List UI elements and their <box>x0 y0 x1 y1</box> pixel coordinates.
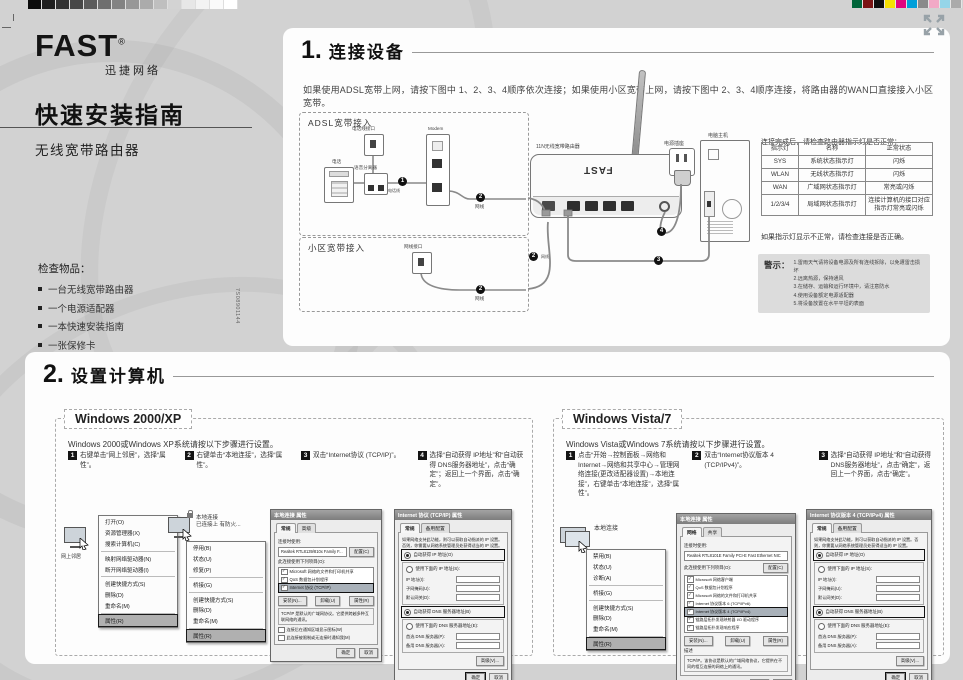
adsl-connection-diagram: ADSL宽带接入 电话线接口 Modem 电话 语音分离器 1 电话线 2 网线 <box>299 112 529 236</box>
calibration-cell <box>885 0 896 8</box>
splitter-label: 语音分离器 <box>354 165 377 171</box>
warning-label: 警示： <box>764 259 790 308</box>
router-label: 11N无线宽带路由器 <box>536 143 580 150</box>
menu-item: 修复(P) <box>187 565 265 576</box>
mask-field-row: 子网掩码(U): <box>406 585 500 592</box>
protocol-list-item: 链路层拓扑发现响应程序 <box>685 624 787 632</box>
warning-item: 4.使用设备额定电源适配器 <box>794 292 924 300</box>
step-number: 3 <box>301 451 310 460</box>
ethernet-port-icon <box>603 201 616 211</box>
calibration-cell <box>224 0 238 9</box>
radio-manual-dns: 使用下面的 DNS 服务器地址(E): <box>406 621 500 631</box>
step-text: 右键单击“网上邻居”，选择“属性”。 <box>80 451 175 489</box>
protocol-list-item: 链路层拓扑发现映射器 I/O 驱动程序 <box>685 616 787 624</box>
radio-icon <box>818 566 825 573</box>
xp-intro: Windows 2000或Windows XP系统请按以下步骤进行设置。 <box>68 439 278 450</box>
properties-button: 属性(R) <box>763 636 788 646</box>
install-button: 安装(N)... <box>684 636 713 646</box>
menu-item: 资源管理器(X) <box>99 528 177 539</box>
power-jack-icon <box>659 201 670 212</box>
calibration-cell <box>84 0 98 9</box>
windows-vista-7-instructions: Windows Vista/7 Windows Vista或Windows 7系… <box>553 418 944 656</box>
ip-input <box>876 576 920 583</box>
vista-intro: Windows Vista或Windows 7系统请按以下步骤进行设置。 <box>566 439 769 450</box>
instruction-step: 2 双击“Internet协议版本 4 (TCP/IPv4)”。 <box>692 451 808 499</box>
instruction-step: 2 右键单击“本地连接”，选择“属性”。 <box>185 451 292 489</box>
dialog-title-bar: Internet 协议 (TCP/IP) 属性 <box>395 510 511 520</box>
cable-label: 网线 <box>541 254 549 260</box>
warning-item: 1.雷雨天气请将设备电源及所有连线拆除，以免遭雷击损坏 <box>794 259 924 275</box>
step-1-ball: 1 <box>398 177 407 186</box>
step-3-ball: 3 <box>654 256 663 265</box>
description-box: TCP/IP 是默认的广域网协议。它提供跨越多种互联网络的通讯。 <box>278 608 374 625</box>
checkbox-icon <box>281 569 288 576</box>
tab-sharing: 共享 <box>703 527 723 537</box>
checklist-item: 一本快速安装指南 <box>38 319 134 333</box>
menu-item: 桥接(G) <box>187 579 265 590</box>
section-connect-devices: 1. 连接设备 如果使用ADSL宽带上网，请按下图中 1、2、3、4顺序依次连接… <box>283 28 950 346</box>
checkbox-icon <box>687 584 694 591</box>
section-title: 设置计算机 <box>71 362 166 387</box>
manual-ip-group: 使用下面的 IP 地址(S): IP 地址(I): 子网掩码(U): 默认网关(… <box>814 562 924 605</box>
modem-label: Modem <box>428 126 443 131</box>
dns1-input <box>456 633 500 640</box>
header-rule <box>412 52 934 53</box>
radio-icon <box>404 609 411 616</box>
dialog-intro-text: 如果网络支持此功能，则可以获取自动指派的 IP 设置。否则，你需要从网络系统管理… <box>814 537 924 548</box>
dialog-title-bar: Internet 协议版本 4 (TCP/IPv4) 属性 <box>807 510 931 520</box>
menu-item: 禁用(B) <box>587 551 665 562</box>
calibration-cell <box>863 0 874 8</box>
menu-item <box>589 636 663 637</box>
ethernet-port-icon <box>585 201 598 211</box>
tower-vent-circle <box>722 199 742 219</box>
status-cell: 闪烁 <box>866 169 933 182</box>
menu-item: 属性(R) <box>99 615 177 626</box>
led-cell: 1/2/3/4 <box>762 195 799 216</box>
section-number: 1. <box>301 36 322 65</box>
status-cell: 闪烁 <box>866 156 933 169</box>
outlet-label: 电源插座 <box>664 140 684 147</box>
step-text: 双击“Internet协议版本 4 (TCP/IPv4)”。 <box>704 451 808 499</box>
advanced-button: 高级(V)... <box>896 656 924 666</box>
icon-caption: 本地连接 <box>594 523 618 532</box>
menu-item: 状态(U) <box>587 562 665 573</box>
calibration-cell <box>56 0 70 9</box>
menu-item: 重命名(M) <box>99 600 177 611</box>
scanned-guide-page: FAST® 迅捷网络 快速安装指南 无线宽带路由器 检查物品： 一台无线宽带路由… <box>0 0 963 680</box>
warning-item: 3.在储存、运输和运行环境中，请注意防水 <box>794 283 924 291</box>
radio-auto-dns: 自动获得 DNS 服务器地址(B) <box>402 607 504 617</box>
ok-button: 确定 <box>466 673 485 680</box>
cursor-icon <box>182 529 192 541</box>
description-box: TCP/IP。该协议是默认的广域网络协议，它提供在不同的相互连接的网络上的通讯。 <box>684 655 788 672</box>
step-text: 右键单击“本地连接”，选择“属性”。 <box>197 451 292 489</box>
dns2-field-row: 备用 DNS 服务器(A): <box>406 642 500 649</box>
tab-networking: 网络 <box>682 527 702 537</box>
install-button: 安装(N)... <box>278 596 307 606</box>
dns1-field-row: 首选 DNS 服务器(P): <box>406 633 500 640</box>
ip-input <box>456 576 500 583</box>
square-bullet-icon <box>38 343 42 347</box>
icon-caption: 本地连接 已连接上 有防火... <box>196 515 250 530</box>
router-brand-text: FAST <box>583 164 613 175</box>
ip-field-row: IP 地址(I): <box>818 576 920 583</box>
checkbox-icon <box>278 627 285 634</box>
calibration-cell <box>951 0 962 8</box>
protocol-list-item: Internet 协议版本 4 (TCP/IPv4) <box>685 608 787 616</box>
radio-icon <box>406 623 413 630</box>
description-label: 描述 <box>684 648 788 654</box>
calibration-cell <box>70 0 84 9</box>
menu-item: 断开网络驱动器(I) <box>99 564 177 575</box>
notify-checkbox-row: 连接后在通知区域显示图标(W) <box>278 627 374 634</box>
phone-line-label: 电话线 <box>388 188 400 194</box>
menu-item: 重命名(M) <box>187 616 265 627</box>
manual-ip-group: 使用下面的 IP 地址(S): IP 地址(I): 子网掩码(U): 默认网关(… <box>402 562 504 605</box>
ip-field-row: IP 地址(I): <box>406 576 500 583</box>
menu-item <box>189 577 263 578</box>
dialog-local-connection-properties-xp: 本地连接 属性 常规 高级 连接时使用: Realtek RTL8139/810… <box>270 509 382 662</box>
context-menu-local-connection: 禁用(B)状态(U)诊断(A)桥接(G)创建快捷方式(S)删除(D)重命名(M)… <box>586 549 666 651</box>
calibration-cell <box>98 0 112 9</box>
calibration-cell <box>112 0 126 9</box>
dns2-field-row: 备用 DNS 服务器(A): <box>818 642 920 649</box>
dialog-title-bar: 本地连接 属性 <box>271 510 381 520</box>
manual-dns-group: 使用下面的 DNS 服务器地址(E): 首选 DNS 服务器(P): 备用 DN… <box>814 619 924 653</box>
protocol-list: Microsoft 网络客户端QoS 数据包计划程序Microsoft 网络的文… <box>684 575 788 634</box>
uninstall-button: 卸载(U) <box>725 636 750 646</box>
mask-input <box>456 585 500 592</box>
radio-icon <box>816 609 823 616</box>
calibration-cell <box>28 0 42 9</box>
cursor-icon <box>578 541 588 553</box>
calibration-cell <box>940 0 951 8</box>
step-text: 点击“开始→控制面板→网络和 Internet→网络和共享中心→管理网络连接(更… <box>578 451 682 499</box>
checkbox-icon <box>687 609 694 616</box>
mask-input <box>876 585 920 592</box>
instruction-step: 3 选择“自动获得 IP地址”和“自动获得 DNS服务器地址”，点击“确定”，返… <box>819 451 935 499</box>
menu-item: 创建快捷方式(S) <box>587 602 665 613</box>
gateway-input <box>456 594 500 601</box>
step-text: 选择“自动获得 IP地址”和“自动获得 DNS服务器地址”，点击“确定”；返回上… <box>430 451 525 489</box>
guide-title: 快速安装指南 <box>35 96 255 130</box>
title-block: 快速安装指南 无线宽带路由器 <box>35 96 255 159</box>
step-number: 3 <box>819 451 828 460</box>
phone-wall-jack-illustration <box>364 134 384 156</box>
radio-manual-dns: 使用下面的 DNS 服务器地址(E): <box>818 621 920 631</box>
step-4-ball: 4 <box>657 227 666 236</box>
community-broadband-diagram: 小区宽带接入 网线接口 2 网线 <box>299 237 529 312</box>
instruction-step: 4 选择“自动获得 IP地址”和“自动获得 DNS服务器地址”，点击“确定”；返… <box>418 451 525 489</box>
radio-icon <box>406 566 413 573</box>
tab-general: 常规 <box>276 523 296 533</box>
title-divider <box>0 127 252 128</box>
checkbox-icon <box>278 635 285 642</box>
calibration-cell <box>852 0 863 8</box>
menu-item <box>101 613 175 614</box>
adapter-name: Realtek RTL8139/810x Family F... <box>278 547 347 557</box>
radio-auto-dns: 自动获得 DNS 服务器地址(B) <box>814 607 924 617</box>
menu-item: 属性(R) <box>187 630 265 641</box>
square-bullet-icon <box>38 306 42 310</box>
router-ports <box>533 196 679 215</box>
section-title: 连接设备 <box>329 38 405 63</box>
grayscale-calibration-strip <box>28 0 238 9</box>
checklist-item: 一个电源适配器 <box>38 301 134 315</box>
header-rule <box>173 376 934 377</box>
name-cell: 系统状态指示灯 <box>799 156 866 169</box>
menu-item: 创建快捷方式(S) <box>187 594 265 605</box>
guide-subtitle: 无线宽带路由器 <box>35 139 255 159</box>
router-illustration: FAST <box>530 154 682 218</box>
radio-auto-ip: 自动获得 IP 地址(O) <box>814 550 924 560</box>
wall-jack-label: 网线接口 <box>404 244 422 250</box>
ok-button: 确定 <box>336 648 355 658</box>
modem-port-icon <box>432 183 442 192</box>
step-2-ball: 2 <box>476 193 485 202</box>
connect-using-label: 连接时使用: <box>278 539 374 545</box>
name-col-header: 名称 <box>799 143 866 156</box>
advanced-button: 高级(V)... <box>476 656 504 666</box>
led-note: 如果指示灯显示不正常，请检查连接是否正确。 <box>761 232 908 242</box>
tab-windows-vista-7: Windows Vista/7 <box>562 409 682 429</box>
step-number: 1 <box>566 451 575 460</box>
brand-tagline: 迅捷网络 <box>35 62 163 78</box>
protocol-list-item: QoS 数据包计划程序 <box>685 584 787 592</box>
menu-item <box>589 600 663 601</box>
icon-caption: 网上邻居 <box>61 553 81 560</box>
instruction-step: 3 双击“Internet协议 (TCP/IP)”。 <box>301 451 408 489</box>
checkbox-icon <box>281 577 288 584</box>
led-table-header-row: 指示灯 名称 正常状态 <box>762 143 933 156</box>
led-cell: WLAN <box>762 169 799 182</box>
square-bullet-icon <box>38 287 42 291</box>
section2-header: 2. 设置计算机 <box>43 360 934 389</box>
protocol-list-item: QoS 数据包计划程序 <box>279 576 373 584</box>
led-table-row: WAN 广域网状态指示灯 常亮或闪烁 <box>762 182 933 195</box>
menu-item: 创建快捷方式(S) <box>99 579 177 590</box>
calibration-cell <box>126 0 140 9</box>
menu-item <box>101 551 175 552</box>
section-number: 2. <box>43 360 64 389</box>
gateway-input <box>876 594 920 601</box>
checklist-item: 一张保修卡 <box>38 338 134 352</box>
menu-item: 属性(R) <box>587 638 665 649</box>
step-text: 双击“Internet协议 (TCP/IP)”。 <box>313 451 400 489</box>
led-table-row: WLAN 无线状态指示灯 闪烁 <box>762 169 933 182</box>
windows-2000-xp-instructions: Windows 2000/XP Windows 2000或Windows XP系… <box>55 418 533 656</box>
step-number: 1 <box>68 451 77 460</box>
status-col-header: 正常状态 <box>866 143 933 156</box>
protocol-list-item: Microsoft 网络的文件和打印机共享 <box>279 568 373 576</box>
tower-grill <box>707 221 733 234</box>
status-cell: 常亮或闪烁 <box>866 182 933 195</box>
calibration-cell <box>918 0 929 8</box>
menu-item: 打开(O) <box>99 517 177 528</box>
lan-box-label: 小区宽带接入 <box>308 242 365 254</box>
radio-auto-ip: 自动获得 IP 地址(O) <box>402 550 504 560</box>
checkbox-icon <box>687 592 694 599</box>
manual-dns-group: 使用下面的 DNS 服务器地址(E): 首选 DNS 服务器(P): 备用 DN… <box>402 619 504 653</box>
protocol-list-item: Internet 协议 (TCP/IP) <box>279 584 373 592</box>
checklist-items: 一台无线宽带路由器一个电源适配器一本快速安装指南一张保修卡 <box>38 282 134 352</box>
dns2-input <box>456 642 500 649</box>
dns2-input <box>876 642 920 649</box>
firewall-lock-icon <box>187 513 193 518</box>
tab-general: 常规 <box>400 523 420 533</box>
instruction-step: 1 点击“开始→控制面板→网络和 Internet→网络和共享中心→管理网络连接… <box>566 451 682 499</box>
configure-button: 配置(C) <box>349 547 374 557</box>
menu-item: 诊断(A) <box>587 573 665 584</box>
fast-logo: FAST® <box>35 30 163 61</box>
radio-icon <box>816 552 823 559</box>
dialog-local-connection-properties-vista: 本地连接 属性 网络 共享 连接时使用: Realtek RTL8101E Fa… <box>676 513 796 680</box>
menu-item: 搜索计算机(C) <box>99 539 177 550</box>
calibration-cell <box>140 0 154 9</box>
section-setup-computer: 2. 设置计算机 Windows 2000/XP Windows 2000或Wi… <box>25 352 950 664</box>
calibration-cell <box>210 0 224 9</box>
protocol-list-item: Microsoft 网络客户端 <box>685 576 787 584</box>
cable-label: 网线 <box>475 296 484 302</box>
tab-alternate: 备用配置 <box>421 523 450 533</box>
checkbox-icon <box>687 576 694 583</box>
warning-item: 2.远离热源，保持通风 <box>794 275 924 283</box>
calibration-cell <box>907 0 918 8</box>
gateway-field-row: 默认网关(D): <box>818 594 920 601</box>
items-list-label: 此连接使用下列项目(O): <box>278 559 374 565</box>
radio-icon <box>404 552 411 559</box>
radio-icon <box>818 623 825 630</box>
checklist-heading: 检查物品： <box>38 261 134 276</box>
brand-block: FAST® 迅捷网络 <box>35 30 163 78</box>
tab-alternate: 备用配置 <box>833 523 862 533</box>
ok-button: 确定 <box>886 673 905 680</box>
cancel-button: 取消 <box>359 648 378 658</box>
warning-list: 1.雷雨天气请将设备电源及所有连线拆除，以免遭雷击损坏2.远离热源，保持通风3.… <box>794 259 924 308</box>
cancel-button: 取消 <box>489 673 508 680</box>
menu-item: 停用(B) <box>187 543 265 554</box>
connect-using-label: 连接时使用: <box>684 543 788 549</box>
led-col-header: 指示灯 <box>762 143 799 156</box>
calibration-cell <box>42 0 56 9</box>
menu-item <box>189 628 263 629</box>
telephone-illustration <box>324 167 354 203</box>
calibration-cell <box>168 0 182 9</box>
cursor-icon <box>79 538 89 550</box>
dialog-title-bar: 本地连接 属性 <box>677 514 795 524</box>
warning-item: 5.将设备放置在水平平坦的表面 <box>794 300 924 308</box>
power-plug-illustration <box>674 170 691 186</box>
wan-port-icon <box>542 201 555 211</box>
tab-windows-2000-xp: Windows 2000/XP <box>64 409 192 429</box>
ethernet-port-icon <box>621 201 634 211</box>
calibration-cell <box>196 0 210 9</box>
step-number: 4 <box>418 451 427 460</box>
expand-fullscreen-icon[interactable] <box>921 12 947 38</box>
properties-button: 属性(R) <box>349 596 374 606</box>
menu-item: 删除(D) <box>99 590 177 601</box>
tab-general: 常规 <box>812 523 832 533</box>
connection-status: 已连接上 有防火... <box>196 522 250 529</box>
computer-tower-illustration <box>700 140 750 242</box>
vista-steps: 1 点击“开始→控制面板→网络和 Internet→网络和共享中心→管理网络连接… <box>566 451 935 499</box>
menu-item: 状态(U) <box>187 554 265 565</box>
menu-item <box>101 576 175 577</box>
wall-jack-label: 电话线接口 <box>352 126 375 132</box>
pc-label: 电脑主机 <box>708 132 728 139</box>
step-2-ball: 2 <box>529 252 538 261</box>
checkbox-icon <box>687 617 694 624</box>
led-cell: SYS <box>762 156 799 169</box>
ethernet-port-icon <box>567 201 580 211</box>
color-calibration-strip <box>852 0 962 8</box>
step-text: 选择“自动获得 IP地址”和“自动获得 DNS服务器地址”，点击“确定”，返回上… <box>831 451 935 499</box>
document-code: 7S08901144 <box>234 288 240 324</box>
tab-advanced: 高级 <box>297 523 317 533</box>
dialog-tcpip-properties-xp: Internet 协议 (TCP/IP) 属性 常规 备用配置 如果网络支持此功… <box>394 509 512 680</box>
uninstall-button: 卸载(U) <box>315 596 340 606</box>
menu-item: 删除(D) <box>187 605 265 616</box>
adapter-name: Realtek RTL8101E Family PCI-E Fast Ether… <box>684 551 788 561</box>
cancel-button: 取消 <box>909 673 928 680</box>
led-cell: WAN <box>762 182 799 195</box>
dns1-field-row: 首选 DNS 服务器(P): <box>818 633 920 640</box>
voice-splitter-illustration <box>364 173 388 195</box>
section1-intro: 如果使用ADSL宽带上网，请按下图中 1、2、3、4顺序依次连接；如果使用小区宽… <box>303 83 938 109</box>
menu-item <box>189 592 263 593</box>
menu-item: 删除(D) <box>587 613 665 624</box>
warning-box: 警示： 1.雷雨天气请将设备电源及所有连线拆除，以免遭雷击损坏2.远离热源，保持… <box>758 254 930 313</box>
protocol-list-item: Internet 协议版本 6 (TCP/IPv6) <box>685 600 787 608</box>
name-cell: 局域网状态指示灯 <box>799 195 866 216</box>
cable-label: 网线 <box>475 204 484 210</box>
crop-mark <box>2 27 11 28</box>
step-2-ball: 2 <box>476 285 485 294</box>
calibration-cell <box>182 0 196 9</box>
dialog-intro-text: 如果网络支持此功能，则可以获取自动指派的 IP 设置。否则，你需要从网络系统管理… <box>402 537 504 548</box>
nic-port-icon <box>704 191 715 217</box>
menu-item: 映射网络驱动器(N) <box>99 553 177 564</box>
led-status-table: 指示灯 名称 正常状态 SYS 系统状态指示灯 闪烁 WLAN 无线状态指示灯 … <box>761 142 933 216</box>
checkbox-icon <box>281 585 288 592</box>
dns1-input <box>876 633 920 640</box>
configure-button: 配置(C) <box>763 563 788 573</box>
status-cell: 连接计算机的接口对应指示灯常亮或闪烁 <box>866 195 933 216</box>
checklist-item: 一台无线宽带路由器 <box>38 282 134 296</box>
menu-item <box>589 585 663 586</box>
radio-manual-ip: 使用下面的 IP 地址(S): <box>406 564 500 574</box>
led-table-row: 1/2/3/4 局域网状态指示灯 连接计算机的接口对应指示灯常亮或闪烁 <box>762 195 933 216</box>
step-number: 2 <box>692 451 701 460</box>
menu-item: 重命名(M) <box>587 624 665 635</box>
context-menu-local-connection: 停用(B)状态(U)修复(P)桥接(G)创建快捷方式(S)删除(D)重命名(M)… <box>186 541 266 643</box>
lan-wall-jack-illustration <box>412 252 432 274</box>
phone-label: 电话 <box>332 159 341 165</box>
items-list-label: 此连接使用下列项目(O): <box>684 565 731 571</box>
calibration-cell <box>896 0 907 8</box>
limited-checkbox-row: 此连接被限制或无连接时通知我(M) <box>278 635 374 642</box>
step-number: 2 <box>185 451 194 460</box>
modem-illustration <box>426 134 450 206</box>
name-cell: 广域网状态指示灯 <box>799 182 866 195</box>
xp-steps: 1 右键单击“网上邻居”，选择“属性”。 2 右键单击“本地连接”，选择“属性”… <box>68 451 524 489</box>
context-menu-network-places: 打开(O)资源管理器(X)搜索计算机(C)映射网络驱动器(N)断开网络驱动器(I… <box>98 515 178 628</box>
name-cell: 无线状态指示灯 <box>799 169 866 182</box>
protocol-list-item: Microsoft 网络的文件和打印机共享 <box>685 592 787 600</box>
calibration-cell <box>154 0 168 9</box>
package-checklist: 检查物品： 一台无线宽带路由器一个电源适配器一本快速安装指南一张保修卡 <box>38 261 134 352</box>
